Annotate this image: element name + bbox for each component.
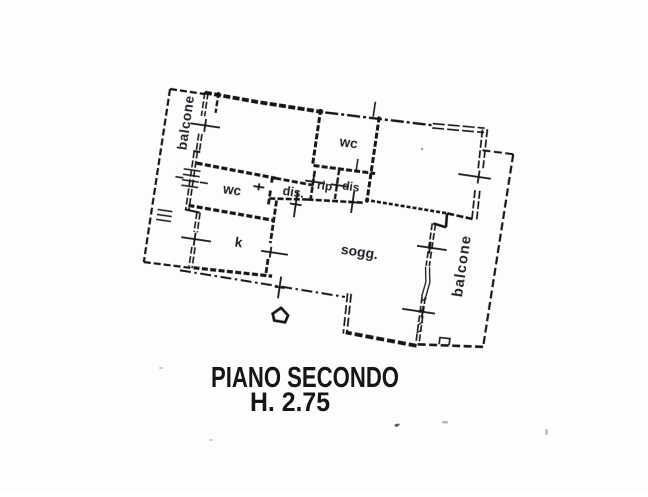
svg-text:wc: wc [338, 134, 359, 152]
svg-text:rip: rip [316, 178, 333, 194]
svg-text:H. 2.75: H. 2.75 [250, 387, 330, 417]
svg-text:dis: dis [341, 178, 361, 194]
svg-text:wc: wc [221, 181, 242, 199]
